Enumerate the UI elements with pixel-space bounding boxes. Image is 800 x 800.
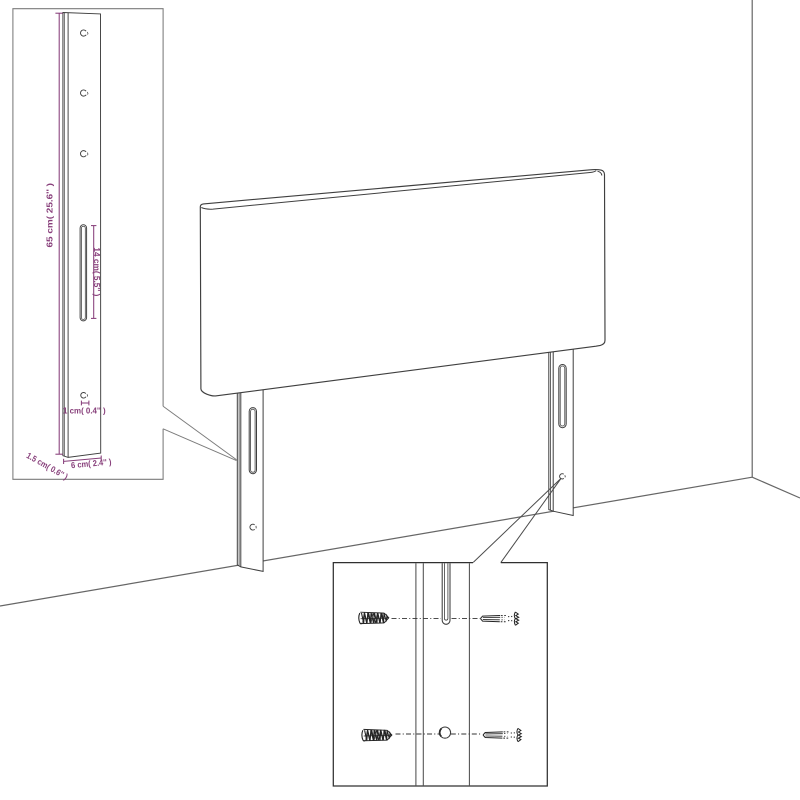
- svg-text:65 cm( 25.6'' ): 65 cm( 25.6'' ): [44, 183, 54, 248]
- svg-text:1 cm( 0.4'' ): 1 cm( 0.4'' ): [63, 406, 106, 416]
- svg-text:14 cm( 5.5'' ): 14 cm( 5.5'' ): [92, 247, 102, 296]
